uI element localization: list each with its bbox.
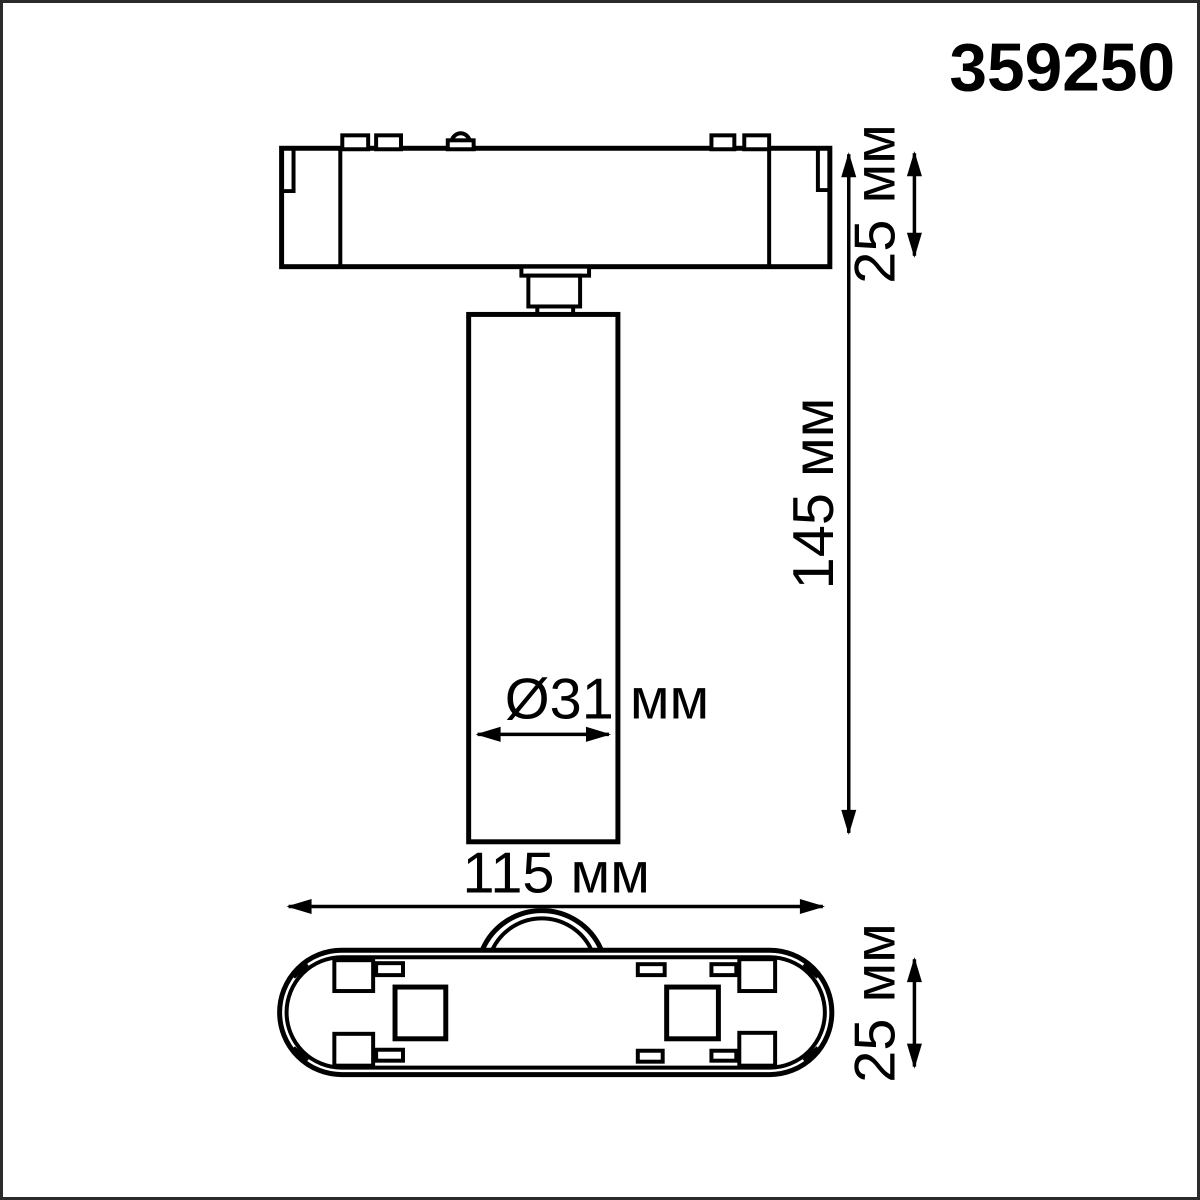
mount-clip bbox=[739, 959, 775, 991]
contact-pad bbox=[638, 964, 665, 975]
contact-tab bbox=[342, 135, 368, 149]
dimension-label: 115 мм bbox=[463, 842, 650, 906]
technical-drawing-page: 359250 25 мм 145 мм Ø31 мм 115 мм bbox=[0, 0, 1200, 1200]
magnet-block bbox=[667, 987, 719, 1039]
contact-pad bbox=[711, 1051, 736, 1061]
lock-button bbox=[448, 133, 474, 149]
lamp-cylinder bbox=[469, 314, 618, 841]
adapter-body bbox=[282, 148, 830, 266]
dimension-adapter-depth: 25 мм bbox=[844, 923, 915, 1083]
magnet-block bbox=[395, 987, 446, 1039]
contact-tab bbox=[376, 135, 401, 149]
dimension-label: 145 мм bbox=[782, 398, 846, 590]
contact-pad bbox=[376, 963, 403, 975]
swivel-joint bbox=[521, 267, 589, 316]
product-code: 359250 bbox=[949, 31, 1175, 106]
dimension-label: Ø31 мм bbox=[505, 667, 709, 731]
contact-pad bbox=[638, 1051, 663, 1062]
joint-block bbox=[528, 276, 580, 307]
track-adapter-side-view bbox=[282, 133, 830, 266]
contact-tab bbox=[711, 135, 734, 149]
mount-clip bbox=[334, 1034, 373, 1066]
contact-pad bbox=[711, 964, 736, 975]
dimension-drawing: 359250 25 мм 145 мм Ø31 мм 115 мм bbox=[3, 3, 1197, 1197]
contact-pad bbox=[376, 1050, 403, 1061]
mount-clip bbox=[334, 960, 373, 991]
contact-tab bbox=[744, 135, 769, 149]
dimension-adapter-length: 115 мм bbox=[289, 842, 823, 907]
lock-button-base bbox=[448, 140, 474, 149]
mount-clip bbox=[739, 1033, 775, 1066]
dimension-label: 25 мм bbox=[844, 124, 908, 284]
dimension-diameter: Ø31 мм bbox=[478, 667, 710, 734]
bottom-view bbox=[280, 911, 832, 1075]
dimension-adapter-height: 25 мм bbox=[844, 124, 915, 284]
dimension-label: 25 мм bbox=[844, 923, 908, 1083]
